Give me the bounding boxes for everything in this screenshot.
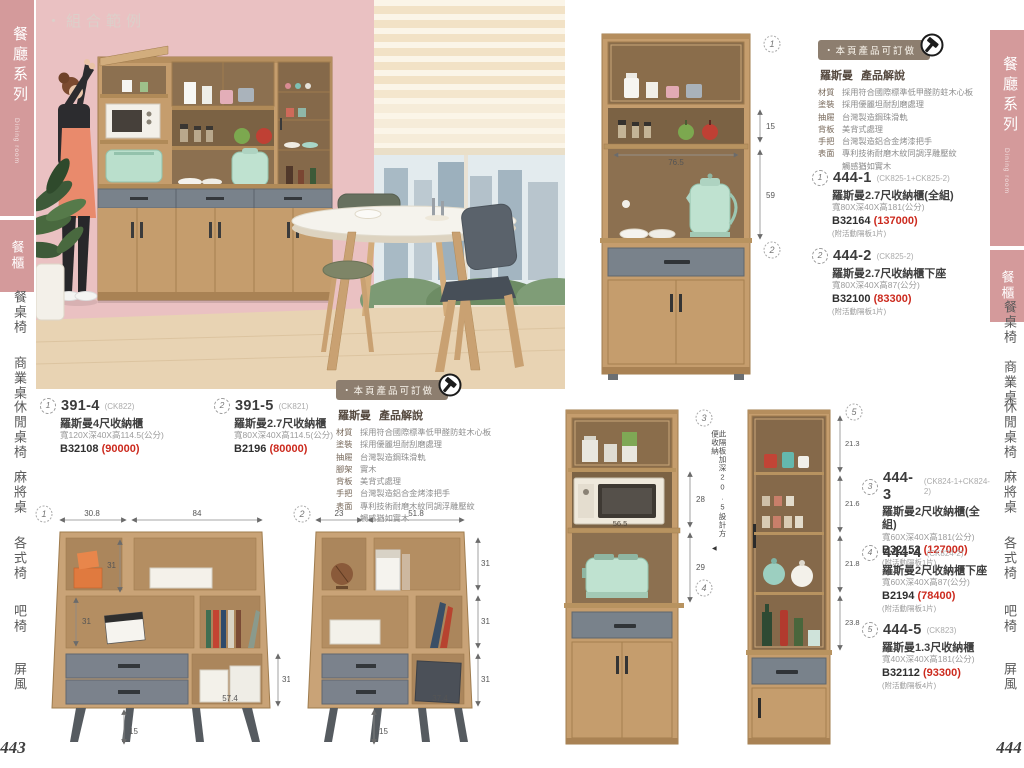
item-number-badge: 2 bbox=[214, 398, 230, 414]
hammer-icon bbox=[437, 372, 463, 398]
spec-row: 塗裝採用優麗坦耐刮磨處理 bbox=[336, 439, 512, 451]
svg-text:21.8: 21.8 bbox=[845, 559, 860, 568]
left-sidebar: 餐廳系列 Dining room 餐櫃 餐桌椅 商業桌 休閒桌椅 麻將桌 各式椅… bbox=[0, 0, 34, 768]
shelf-depth-annotation: 此隔板加深20.5設計方便收納 bbox=[711, 430, 726, 540]
item-number-badge: 2 bbox=[812, 248, 828, 264]
spec-row: 手把台灣製造鋁合金烤漆把手 bbox=[818, 136, 990, 148]
dimension-drawing-391-4: 1 30.8 84 31 31 31 57.4 15 bbox=[32, 502, 290, 754]
product-note: (附活動隔板1片) bbox=[882, 605, 992, 614]
model-code: (CK824-2) bbox=[927, 549, 964, 558]
svg-text:21.6: 21.6 bbox=[845, 499, 860, 508]
series-subtitle: Dining room bbox=[13, 118, 20, 164]
sidebar-item-mahjong-tables[interactable]: 麻將桌 bbox=[10, 470, 29, 515]
product-listing-444-2: 2 444-2 (CK825-2) 羅斯曼2.7尺收納櫃下座 寬80X深40X高… bbox=[812, 248, 992, 316]
spec-title: 羅斯曼產品解說 bbox=[820, 67, 990, 83]
sidebar-item-commercial-tables[interactable]: 商業桌 bbox=[1000, 360, 1019, 405]
product-price: (78400) bbox=[917, 590, 955, 602]
product-listing-444-1: 1 444-1 (CK825-1+CK825-2) 羅斯曼2.7尺收納櫃(全組)… bbox=[812, 170, 992, 238]
spec-row: 腳架實木 bbox=[336, 464, 512, 476]
product-listing-391-4: 1 391-4 (CK822) 羅斯曼4尺收納櫃 寬120X深40X高114.5… bbox=[40, 398, 210, 456]
svg-text:31: 31 bbox=[107, 561, 116, 570]
svg-text:31: 31 bbox=[481, 617, 490, 626]
svg-text:4: 4 bbox=[701, 583, 706, 593]
series-title: 餐廳系列 bbox=[999, 56, 1020, 136]
product-name: 羅斯曼2尺收納櫃下座 bbox=[882, 565, 992, 578]
pointer-left-icon: ◀ bbox=[712, 545, 717, 552]
customizable-badge: ・本頁產品可訂做 bbox=[818, 40, 930, 60]
model-number: 391-4 bbox=[61, 398, 100, 415]
spec-row: 塗裝採用優麗坦耐刮磨處理 bbox=[818, 99, 990, 111]
product-photo-444-5: 21.3 21.6 21.8 23.8 5 bbox=[742, 398, 866, 763]
svg-text:23.8: 23.8 bbox=[845, 618, 860, 627]
svg-text:84: 84 bbox=[193, 509, 202, 518]
sidebar-item-cabinet[interactable]: 餐櫃 bbox=[0, 220, 34, 292]
sidebar-item-mahjong-tables[interactable]: 麻將桌 bbox=[1000, 470, 1019, 515]
product-note: (附活動隔板1片) bbox=[832, 308, 992, 317]
spec-title: 羅斯曼產品解說 bbox=[338, 407, 512, 423]
spec-row: 手把台灣製造鋁合金烤漆把手 bbox=[336, 488, 512, 500]
model-number: 391-5 bbox=[235, 398, 274, 415]
spec-row: 抽屜台灣製造鋼珠滑軌 bbox=[818, 112, 990, 124]
svg-text:1: 1 bbox=[769, 39, 774, 49]
svg-text:56.5: 56.5 bbox=[613, 519, 628, 528]
product-dimensions: 寬60X深40X高181(公分) bbox=[882, 533, 992, 543]
product-photo-444-1: 76.5 15 59 1 2 bbox=[590, 28, 790, 393]
product-price: (90000) bbox=[102, 443, 140, 455]
spec-row: 材質採用符合國際標準低甲醛防蛀木心板 bbox=[818, 87, 990, 99]
sidebar-item-chairs[interactable]: 各式椅 bbox=[1000, 536, 1019, 581]
model-code: (CK824-1+CK824-2) bbox=[924, 477, 992, 495]
svg-text:2: 2 bbox=[298, 509, 304, 519]
svg-text:15: 15 bbox=[766, 122, 775, 131]
svg-text:23: 23 bbox=[335, 509, 344, 518]
sidebar-item-commercial-tables[interactable]: 商業桌 bbox=[10, 356, 29, 401]
series-title: 餐廳系列 bbox=[9, 26, 30, 106]
page-number-left: 443 bbox=[0, 738, 30, 758]
spec-row: 背板美背式處理 bbox=[818, 124, 990, 136]
item-number-badge: 1 bbox=[40, 398, 56, 414]
svg-text:31: 31 bbox=[82, 617, 91, 626]
page-number-right: 444 bbox=[992, 738, 1024, 758]
sidebar-item-leisure-sets[interactable]: 休閒桌椅 bbox=[1000, 400, 1019, 460]
product-name: 羅斯曼2.7尺收納櫃下座 bbox=[832, 268, 992, 281]
product-sku: B32164 (137000) bbox=[832, 215, 992, 228]
svg-text:15: 15 bbox=[379, 727, 388, 736]
svg-text:31: 31 bbox=[481, 559, 490, 568]
product-listing-444-5: 5 444-5 (CK823) 羅斯曼1.3尺收納櫃 寬40X深40X高181(… bbox=[862, 622, 992, 690]
product-price: (83300) bbox=[874, 293, 912, 305]
svg-text:57.4: 57.4 bbox=[222, 694, 238, 703]
model-number: 444-3 bbox=[883, 470, 919, 503]
product-dimensions: 寬120X深40X高114.5(公分) bbox=[60, 431, 210, 441]
item-number-badge: 1 bbox=[812, 170, 828, 186]
spec-row: 材質採用符合國際標準低甲醛防蛀木心板 bbox=[336, 427, 512, 439]
sidebar-item-bar-chairs[interactable]: 吧椅 bbox=[1000, 604, 1019, 634]
product-dimensions: 寬80X深40X高181(公分) bbox=[832, 203, 992, 213]
product-sku: B32112 (93300) bbox=[882, 667, 992, 680]
model-code: (CK821) bbox=[279, 402, 309, 411]
series-subtitle: Dining room bbox=[1003, 148, 1010, 194]
svg-text:51.8: 51.8 bbox=[408, 509, 424, 518]
item-number-badge: 3 bbox=[862, 479, 878, 495]
svg-text:76.5: 76.5 bbox=[668, 158, 684, 167]
product-dimensions: 寬80X深40X高87(公分) bbox=[832, 281, 992, 291]
lifestyle-photo: ・組合範例 bbox=[36, 0, 565, 389]
item-number-badge: 5 bbox=[862, 622, 878, 638]
sidebar-item-leisure-sets[interactable]: 休閒桌椅 bbox=[10, 400, 29, 460]
customizable-badge: ・本頁產品可訂做 bbox=[336, 380, 448, 400]
product-dimensions: 寬40X深40X高181(公分) bbox=[882, 655, 992, 665]
sidebar-item-chairs[interactable]: 各式椅 bbox=[10, 536, 29, 581]
spec-box-right: ・本頁產品可訂做 羅斯曼產品解說 材質採用符合國際標準低甲醛防蛀木心板 塗裝採用… bbox=[818, 40, 990, 173]
model-code: (CK825-2) bbox=[877, 252, 914, 261]
product-note: (附活動隔板4片) bbox=[882, 682, 992, 691]
svg-text:31: 31 bbox=[282, 675, 290, 684]
spec-row: 抽屜台灣製造鋼珠滑軌 bbox=[336, 452, 512, 464]
product-sku: B2194 (78400) bbox=[882, 590, 992, 603]
model-number: 444-1 bbox=[833, 170, 872, 187]
svg-text:28: 28 bbox=[696, 495, 705, 504]
product-price: (137000) bbox=[874, 215, 918, 227]
svg-text:2: 2 bbox=[768, 245, 774, 255]
svg-text:30.8: 30.8 bbox=[84, 509, 100, 518]
svg-text:31: 31 bbox=[481, 675, 490, 684]
item-number-badge: 4 bbox=[862, 545, 878, 561]
sidebar-item-dining-sets[interactable]: 餐桌椅 bbox=[1000, 300, 1019, 345]
dimension-drawing-391-5: 2 23 51.8 31 31 31 37.4 15 bbox=[290, 502, 490, 754]
svg-text:37.4: 37.4 bbox=[432, 694, 448, 703]
model-number: 444-5 bbox=[883, 622, 922, 639]
model-code: (CK825-1+CK825-2) bbox=[877, 174, 950, 183]
svg-text:15: 15 bbox=[129, 727, 138, 736]
spec-row: 表面專利技術耐磨木紋同調浮雕壓紋 bbox=[818, 148, 990, 160]
wood-floor bbox=[36, 306, 565, 389]
sidebar-item-dining-sets[interactable]: 餐桌椅 bbox=[10, 290, 29, 335]
dimension-labels: 15 59 bbox=[760, 110, 775, 239]
product-sku: B32100 (83300) bbox=[832, 293, 992, 306]
svg-text:3: 3 bbox=[701, 413, 706, 423]
model-number: 444-4 bbox=[883, 545, 922, 562]
product-name: 羅斯曼2尺收納櫃(全組) bbox=[882, 506, 992, 531]
spec-row: 背板美背式處理 bbox=[336, 476, 512, 488]
dimension-labels: 21.3 21.6 21.8 23.8 bbox=[840, 416, 860, 650]
product-price: (93300) bbox=[923, 667, 961, 679]
model-number: 444-2 bbox=[833, 248, 872, 265]
right-sidebar: 餐廳系列 Dining room 餐櫃 餐桌椅 商業桌 休閒桌椅 麻將桌 各式椅… bbox=[990, 0, 1024, 768]
product-listing-444-4: 4 444-4 (CK824-2) 羅斯曼2尺收納櫃下座 寬60X深40X高87… bbox=[862, 545, 992, 613]
product-name: 羅斯曼1.3尺收納櫃 bbox=[882, 642, 992, 655]
svg-text:21.3: 21.3 bbox=[845, 439, 860, 448]
series-block: 餐廳系列 Dining room bbox=[0, 0, 34, 216]
model-code: (CK823) bbox=[927, 626, 957, 635]
hammer-icon bbox=[919, 32, 945, 58]
sidebar-item-screens[interactable]: 屏風 bbox=[1000, 662, 1019, 692]
sidebar-item-screens[interactable]: 屏風 bbox=[10, 662, 29, 692]
product-name: 羅斯曼4尺收納櫃 bbox=[60, 418, 210, 431]
sidebar-item-bar-chairs[interactable]: 吧椅 bbox=[10, 604, 29, 634]
svg-text:1: 1 bbox=[41, 509, 46, 519]
product-note: (附活動隔板1片) bbox=[832, 230, 992, 239]
product-dimensions: 寬60X深40X高87(公分) bbox=[882, 578, 992, 588]
svg-text:5: 5 bbox=[851, 407, 857, 417]
product-name: 羅斯曼2.7尺收納櫃(全組) bbox=[832, 190, 992, 203]
model-code: (CK822) bbox=[105, 402, 135, 411]
product-sku: B32108 (90000) bbox=[60, 443, 210, 456]
svg-text:59: 59 bbox=[766, 191, 775, 200]
series-block: 餐廳系列 Dining room bbox=[990, 30, 1024, 246]
photo-caption: ・組合範例 bbox=[46, 12, 146, 30]
svg-text:29: 29 bbox=[696, 563, 705, 572]
sideboard-combination bbox=[98, 46, 332, 303]
product-price: (80000) bbox=[269, 443, 307, 455]
